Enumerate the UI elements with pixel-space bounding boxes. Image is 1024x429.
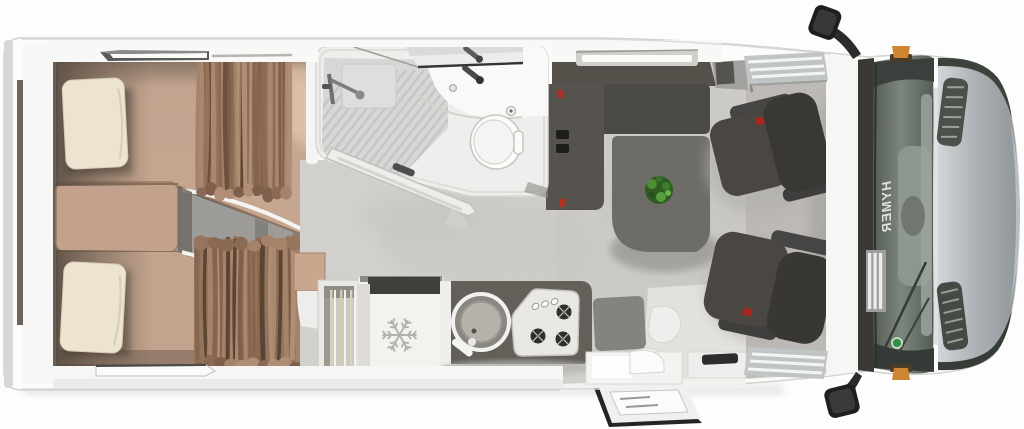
svg-text:HYMER: HYMER <box>879 181 894 233</box>
